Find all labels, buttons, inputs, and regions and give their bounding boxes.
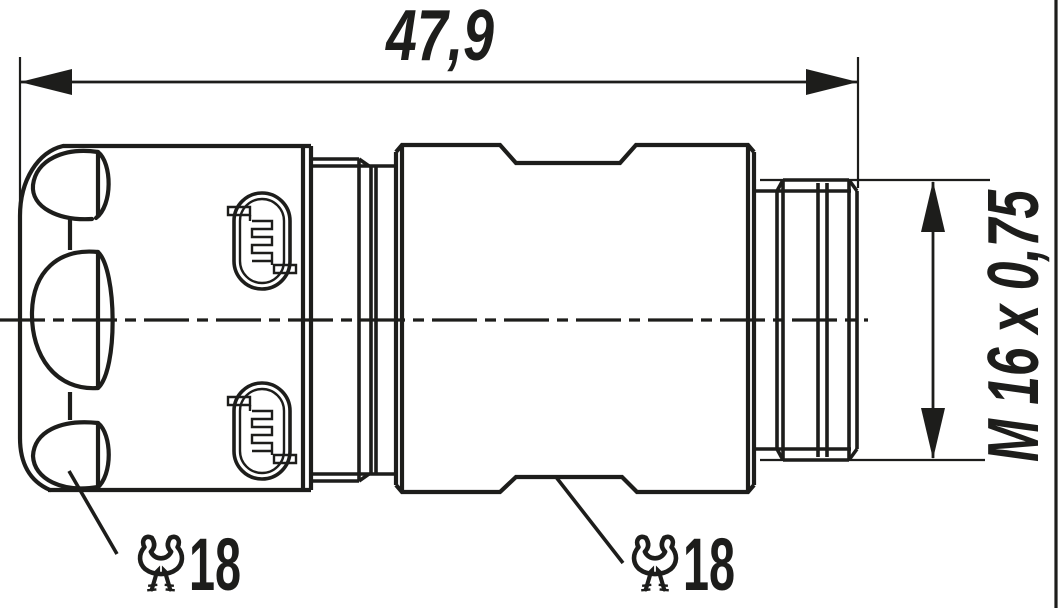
drawing-canvas: 47,9 xyxy=(0,0,1058,608)
coupling-bottom-profile xyxy=(396,477,754,492)
cable-housing xyxy=(20,146,311,490)
slot-inner-outline xyxy=(240,199,284,283)
wrench-size-value: 18 xyxy=(683,523,735,606)
arrowhead-up xyxy=(921,181,945,232)
lobe-bottom xyxy=(33,422,98,488)
length-dimension-value: 47,9 xyxy=(384,0,494,76)
slot-tab-right xyxy=(274,455,296,463)
latch-slot-lower xyxy=(228,383,296,479)
arrowhead-left xyxy=(20,69,72,95)
latch-slot-upper xyxy=(228,193,296,289)
length-dimension: 47,9 xyxy=(20,0,858,212)
slot-tab-left xyxy=(228,207,250,215)
wrench-icon xyxy=(634,537,676,591)
coupling-top-profile xyxy=(396,145,754,163)
wrench-size-value: 18 xyxy=(189,523,241,606)
wrench-icon xyxy=(140,537,182,591)
leader-line-right xyxy=(556,477,623,563)
arrowhead-down xyxy=(921,408,945,459)
wrench-size-left: 18 xyxy=(140,523,241,606)
slot-tab-right xyxy=(274,265,296,273)
slot-inner-outline xyxy=(240,389,284,473)
lobe-top xyxy=(33,151,98,219)
thread-dimension-value: M 16 x 0,75 xyxy=(974,189,1054,462)
arrowhead-right xyxy=(806,69,858,95)
leader-line-left xyxy=(69,471,117,554)
slot-spring-pattern xyxy=(250,215,272,265)
wrench-size-right: 18 xyxy=(634,523,735,606)
connector-technical-drawing: 47,9 xyxy=(0,0,1058,608)
slot-spring-pattern xyxy=(250,405,272,455)
